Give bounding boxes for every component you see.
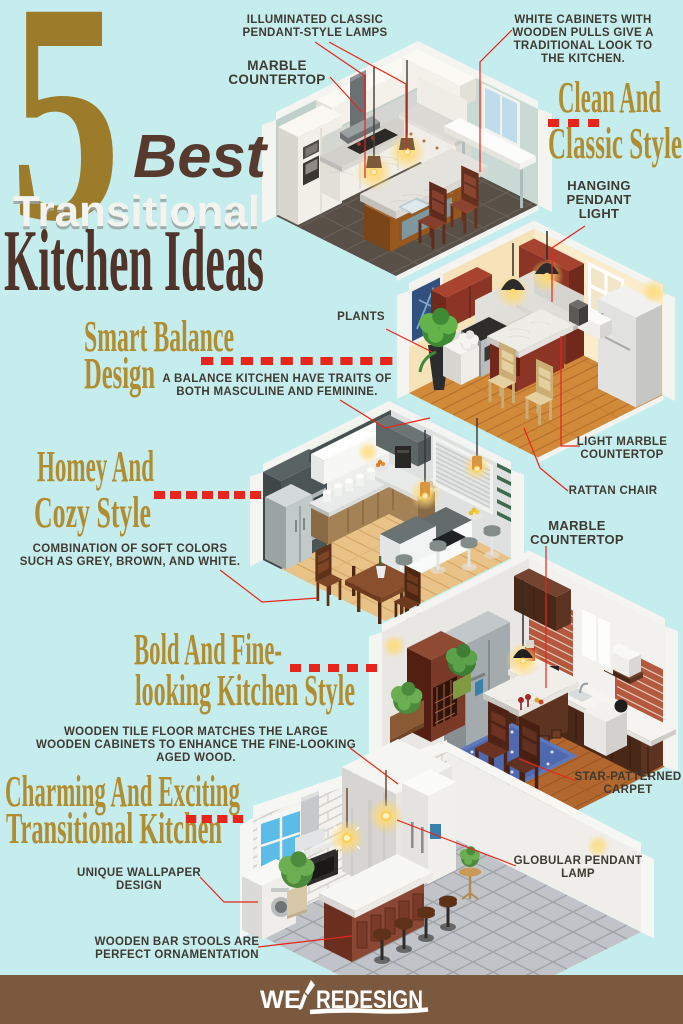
svg-text:LIGHT MARBLECOUNTERTOP: LIGHT MARBLECOUNTERTOP bbox=[577, 436, 668, 461]
svg-text:looking Kitchen Style: looking Kitchen Style bbox=[135, 666, 355, 715]
svg-text:Cozy Style: Cozy Style bbox=[34, 488, 151, 537]
svg-text:Clean And: Clean And bbox=[558, 73, 661, 122]
svg-text:ILLUMINATED CLASSICPENDANT-STY: ILLUMINATED CLASSICPENDANT-STYLE LAMPS bbox=[243, 14, 388, 39]
svg-text:Best: Best bbox=[133, 122, 269, 190]
svg-text:WOODEN BAR STOOLS AREPERFECT O: WOODEN BAR STOOLS AREPERFECT ORNAMENTATI… bbox=[95, 936, 260, 961]
svg-text:Design: Design bbox=[84, 349, 155, 398]
svg-text:A BALANCE KITCHEN HAVE TRAITS: A BALANCE KITCHEN HAVE TRAITS OFBOTH MAS… bbox=[162, 373, 391, 398]
svg-text:Transitional Kitchen: Transitional Kitchen bbox=[6, 804, 222, 853]
svg-text:COMBINATION OF SOFT COLORSSUC: COMBINATION OF SOFT COLORSSUCH AS GREY, … bbox=[20, 543, 241, 568]
svg-text:WE: WE bbox=[260, 986, 301, 1014]
svg-text:PLANTS: PLANTS bbox=[337, 311, 385, 323]
svg-text:Homey And: Homey And bbox=[37, 442, 154, 491]
svg-text:Kitchen Ideas: Kitchen Ideas bbox=[4, 213, 264, 310]
svg-text:RATTAN CHAIR: RATTAN CHAIR bbox=[569, 485, 658, 497]
